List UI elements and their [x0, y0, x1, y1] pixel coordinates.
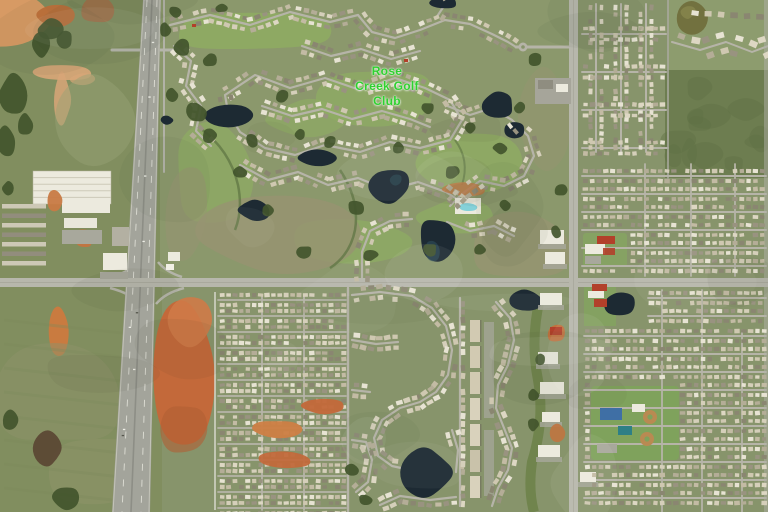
- satellite-map-view[interactable]: Rose Creek Golf Club: [0, 0, 768, 512]
- aerial-imagery: [0, 0, 768, 512]
